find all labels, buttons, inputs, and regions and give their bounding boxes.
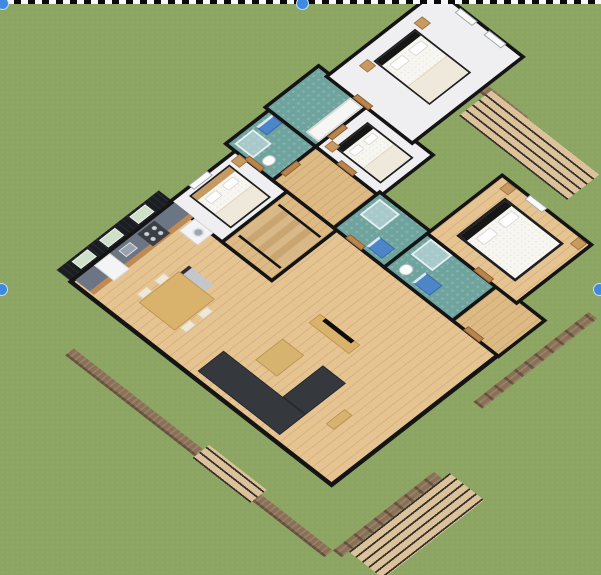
render-canvas[interactable] xyxy=(0,0,601,575)
deck-west[interactable] xyxy=(193,445,267,503)
house-3d-model[interactable] xyxy=(45,0,601,506)
blanket xyxy=(363,144,411,181)
selection-handle-middle-left[interactable] xyxy=(0,283,8,296)
deck-east[interactable] xyxy=(459,90,599,199)
selection-handle-middle-right[interactable] xyxy=(593,283,601,296)
washer-door-icon xyxy=(188,225,208,241)
selection-handle-top-left[interactable] xyxy=(0,0,9,10)
selection-handle-top-center[interactable] xyxy=(296,0,309,10)
